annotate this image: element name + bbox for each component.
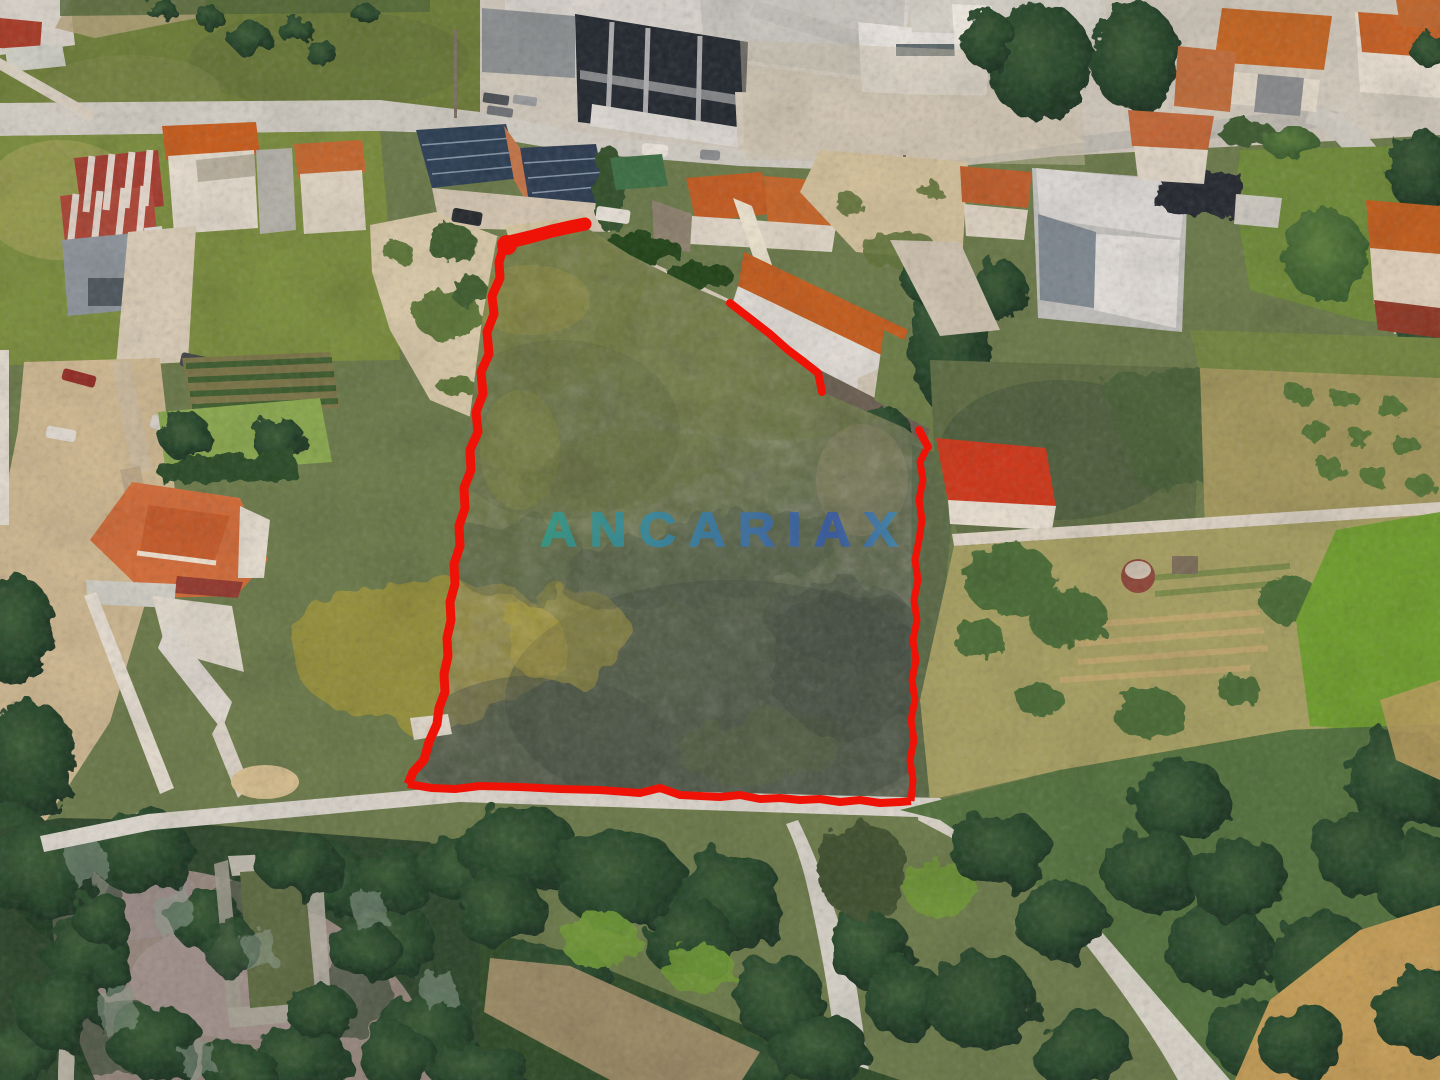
svg-text:ANCARIAX: ANCARIAX [540,504,910,557]
